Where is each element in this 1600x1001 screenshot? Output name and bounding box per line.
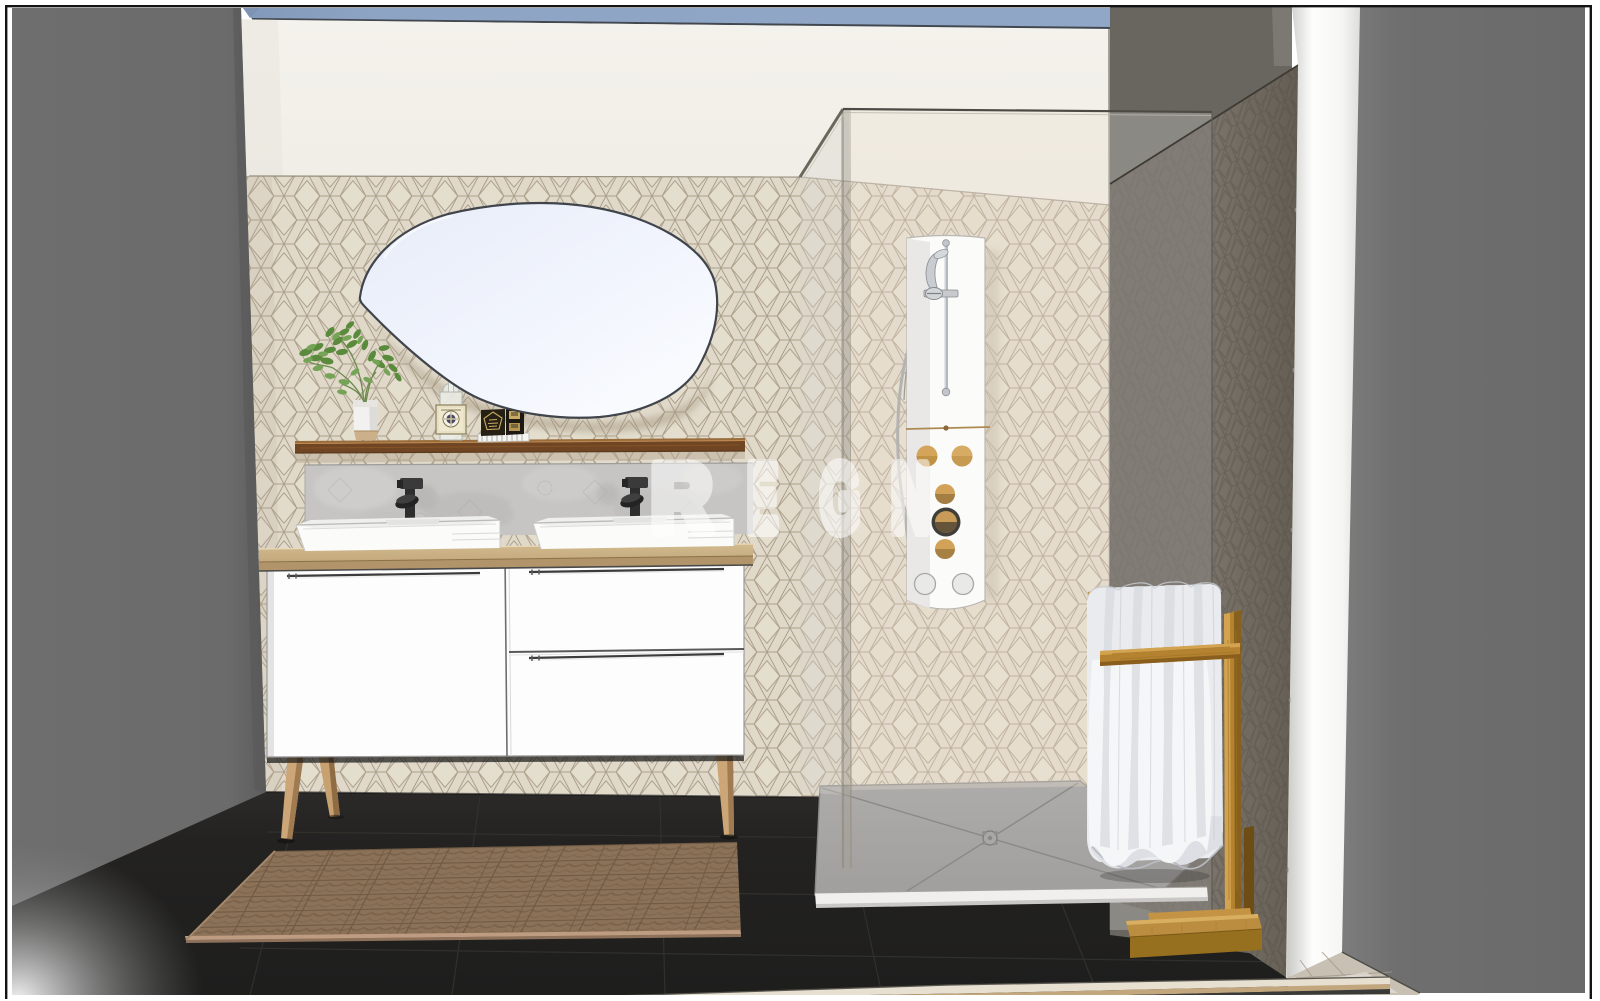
svg-text:N: N <box>891 445 930 552</box>
svg-text:E: E <box>747 445 778 552</box>
svg-text:R: R <box>651 445 712 552</box>
svg-text:G: G <box>820 445 860 552</box>
